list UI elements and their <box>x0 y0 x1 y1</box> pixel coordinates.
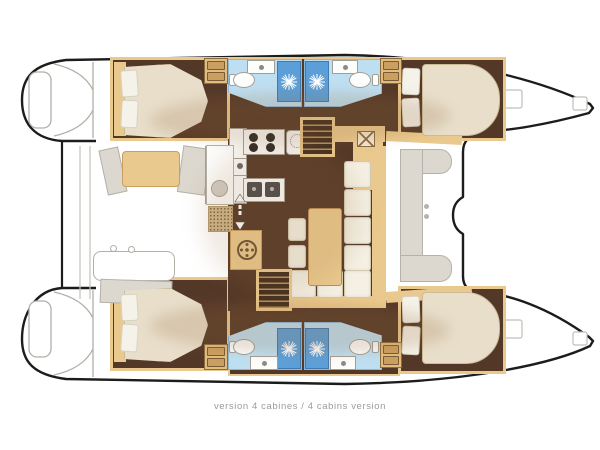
sofa-cushion <box>344 217 371 244</box>
companionway-arrow-icon <box>234 194 246 230</box>
pillow <box>120 69 139 97</box>
davit-rails <box>80 146 90 299</box>
pillow <box>120 323 139 352</box>
sink-icon <box>250 356 278 370</box>
stool-cushion <box>288 245 306 268</box>
starboard-transom-steps <box>29 290 93 377</box>
sofa-cushion <box>344 189 371 216</box>
forward-cockpit-bench <box>400 255 452 282</box>
mast-step-cabinet <box>230 230 262 270</box>
port-forward-shower <box>305 61 329 102</box>
toilet-icon <box>233 336 259 358</box>
sofa-corner-cushion <box>344 270 371 298</box>
sofa-cushion <box>344 245 371 271</box>
dresser-icon <box>380 58 402 84</box>
cockpit-table <box>93 251 175 281</box>
nav-sink-icon <box>357 131 375 147</box>
sofa-cushion <box>344 161 371 188</box>
salon-table <box>308 208 342 286</box>
port-companionway-stairs <box>300 117 335 157</box>
toilet-icon <box>349 336 375 358</box>
dresser-icon <box>380 342 402 368</box>
plan-caption: version 4 cabines / 4 cabins version <box>0 401 600 412</box>
dresser-icon <box>204 344 228 370</box>
double-sink-icon <box>243 178 285 202</box>
stove-icon <box>243 129 285 155</box>
starboard-forward-bed <box>422 292 500 364</box>
shower-drain-icon <box>307 72 327 92</box>
catamaran-floorplan: version 4 cabines / 4 cabins version <box>0 0 600 450</box>
port-aft-shower <box>277 61 301 102</box>
galley-floor-mat <box>208 206 233 232</box>
starboard-aft-shower <box>277 328 301 369</box>
pillow <box>120 294 138 322</box>
faucet-icon <box>233 158 247 176</box>
pillow <box>402 296 421 324</box>
sofa-backrest-wall <box>372 146 386 306</box>
pillow <box>402 68 421 96</box>
sink-icon <box>330 356 356 370</box>
stool-cushion <box>288 218 306 241</box>
starboard-forward-shower <box>305 328 329 369</box>
cup-holder-icon <box>110 245 117 252</box>
cup-holder-icon <box>424 214 429 219</box>
toilet-icon <box>349 69 375 91</box>
pillow <box>401 326 420 356</box>
cup-holder-icon <box>424 204 429 209</box>
shower-drain-icon <box>279 72 299 92</box>
cup-holder-icon <box>128 246 135 253</box>
dresser-icon <box>204 58 228 84</box>
cockpit-bench-cushion <box>122 151 180 187</box>
port-transom-steps <box>29 62 93 138</box>
cockpit-module <box>206 145 234 205</box>
starboard-companionway-stairs <box>256 269 292 311</box>
shower-drain-icon <box>307 339 327 359</box>
spoked-wheel-icon <box>232 235 262 265</box>
shower-drain-icon <box>279 339 299 359</box>
toilet-icon <box>233 69 259 91</box>
port-forward-bed <box>422 64 500 136</box>
pillow <box>401 98 420 128</box>
pillow <box>120 100 138 129</box>
